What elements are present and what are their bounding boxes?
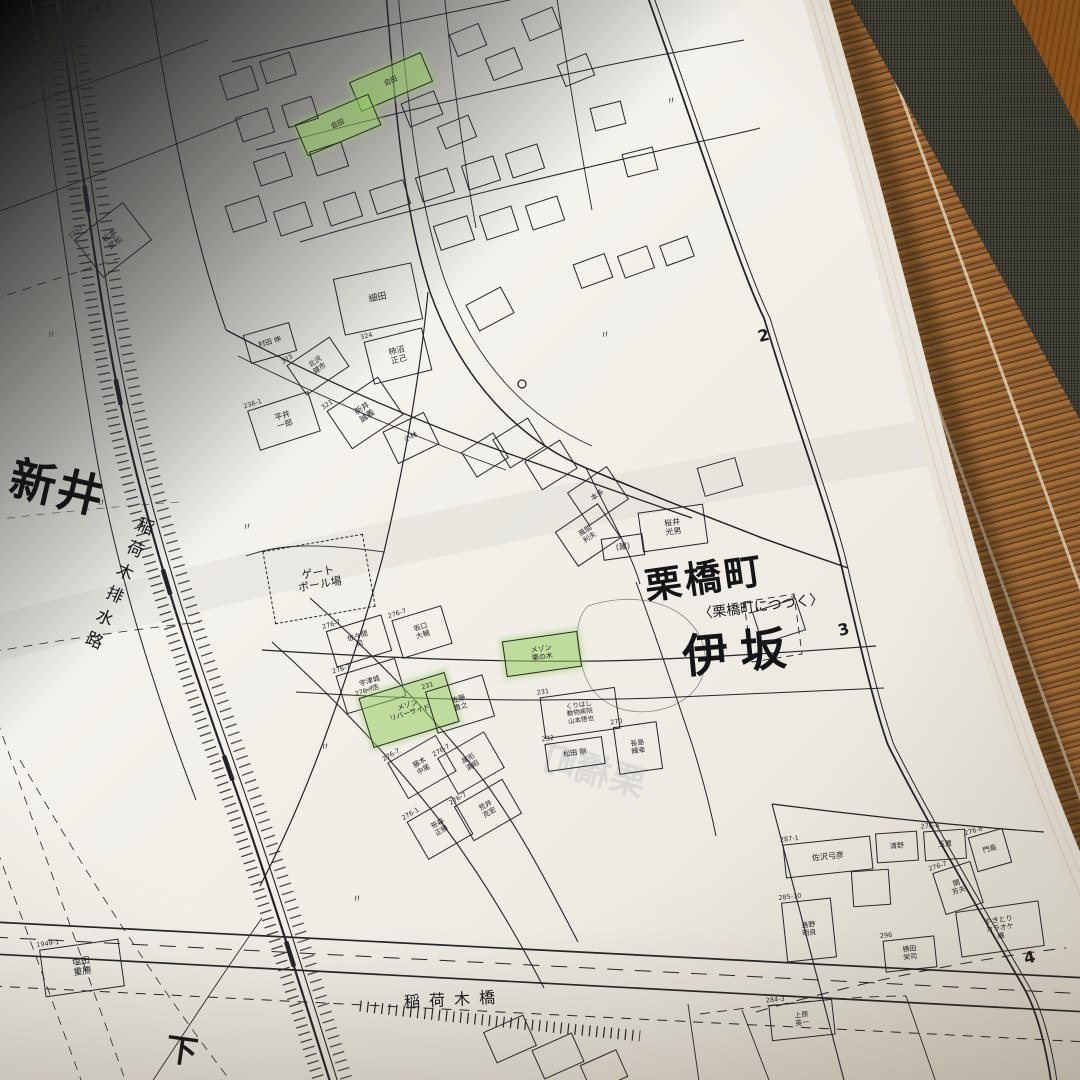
photo-of-residential-map-book: 新井 稲荷木排水路 稲荷木橋 下 栗橋町 〈栗橋町につづく〉 伊坂 栗橋町 大塚… [0, 0, 1080, 1080]
map-line-art [0, 0, 1080, 1080]
